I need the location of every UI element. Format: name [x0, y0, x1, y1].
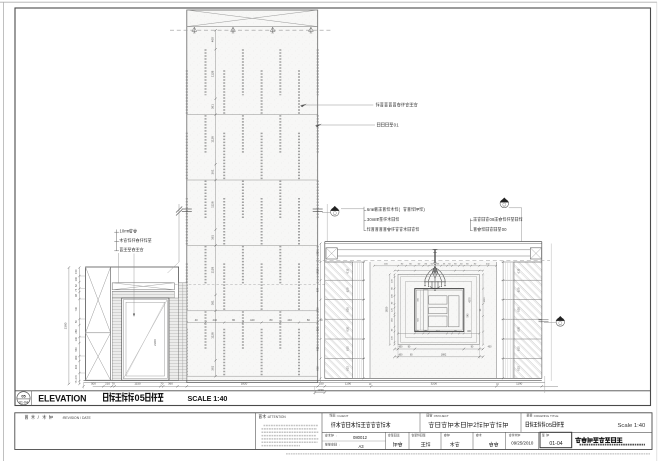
svg-text::CLIENT: :CLIENT [337, 414, 349, 418]
svg-text:730: 730 [74, 306, 78, 311]
svg-text:1128: 1128 [210, 332, 214, 339]
svg-text:620: 620 [315, 326, 319, 331]
svg-text:361: 361 [210, 104, 214, 109]
svg-text:615: 615 [517, 268, 521, 273]
svg-text:01-04: 01-04 [549, 441, 562, 447]
svg-text:3200: 3200 [431, 382, 438, 386]
svg-text:5: 5 [549, 423, 552, 429]
svg-text:70: 70 [112, 382, 116, 386]
svg-text:4278: 4278 [469, 297, 471, 303]
svg-text:400: 400 [210, 37, 214, 42]
svg-text:2300: 2300 [153, 339, 157, 346]
svg-text:440: 440 [213, 318, 218, 322]
svg-text:280: 280 [74, 329, 78, 334]
svg-text:01-04: 01-04 [19, 401, 28, 405]
svg-text::DRAWING TITLE: :DRAWING TITLE [534, 414, 559, 418]
svg-text:09/25/2010: 09/25/2010 [511, 441, 534, 446]
svg-text:100: 100 [74, 276, 78, 281]
svg-text:361: 361 [210, 169, 214, 174]
svg-text:361: 361 [210, 300, 214, 305]
svg-text:1190: 1190 [345, 382, 352, 386]
svg-text:615: 615 [346, 366, 350, 371]
svg-text::REVISION / DATE: :REVISION / DATE [62, 416, 92, 420]
svg-text:ELEVATION: ELEVATION [38, 393, 86, 403]
svg-text:620: 620 [517, 307, 521, 312]
svg-text:5: 5 [140, 393, 145, 403]
svg-text:620: 620 [346, 307, 350, 312]
svg-text:70: 70 [160, 382, 164, 386]
svg-text:250: 250 [319, 382, 324, 386]
svg-text:m: m [372, 207, 376, 212]
svg-text:130: 130 [74, 336, 78, 341]
svg-text:80: 80 [270, 318, 273, 322]
svg-text:361: 361 [210, 235, 214, 240]
svg-text:615: 615 [315, 268, 319, 273]
svg-text:T: T [377, 217, 380, 222]
svg-text::ATTENTION: :ATTENTION [267, 415, 286, 419]
svg-text:615: 615 [346, 268, 350, 273]
svg-text:1330: 1330 [317, 388, 324, 392]
svg-text:40: 40 [195, 318, 198, 322]
svg-text:2: 2 [473, 422, 477, 429]
svg-text:80: 80 [307, 318, 310, 322]
svg-text:615: 615 [315, 346, 319, 351]
svg-text:400: 400 [74, 364, 78, 369]
svg-text:1150: 1150 [134, 382, 141, 386]
svg-text:615: 615 [315, 366, 319, 371]
svg-text:1128: 1128 [210, 70, 214, 77]
svg-text:150: 150 [74, 269, 78, 274]
svg-text:620: 620 [315, 287, 319, 292]
svg-text:620: 620 [346, 287, 350, 292]
svg-text:1128: 1128 [210, 201, 214, 208]
svg-text:440: 440 [287, 318, 292, 322]
svg-text:1820: 1820 [241, 382, 248, 386]
svg-text:620: 620 [517, 326, 521, 331]
svg-text:Scale 1:40: Scale 1:40 [618, 423, 647, 429]
svg-text:1128: 1128 [210, 267, 214, 274]
svg-text:440: 440 [250, 318, 255, 322]
svg-text:2380: 2380 [64, 322, 68, 329]
svg-text:360: 360 [74, 355, 78, 360]
svg-text:A3: A3 [358, 444, 364, 449]
svg-text:80: 80 [232, 318, 235, 322]
svg-text:1010: 1010 [484, 297, 486, 303]
svg-text:210: 210 [105, 382, 110, 386]
svg-text:615: 615 [346, 346, 350, 351]
svg-text:360: 360 [168, 382, 173, 386]
svg-text:620: 620 [315, 307, 319, 312]
svg-text:615: 615 [517, 366, 521, 371]
svg-text:620: 620 [517, 287, 521, 292]
svg-text:080012: 080012 [353, 435, 368, 440]
svg-text:SCALE 1:40: SCALE 1:40 [188, 394, 228, 403]
svg-text:1128: 1128 [210, 136, 214, 143]
svg-text:270: 270 [74, 375, 78, 380]
svg-text:615: 615 [517, 346, 521, 351]
svg-text:560: 560 [74, 347, 78, 352]
svg-text:1190: 1190 [516, 382, 523, 386]
svg-text:620: 620 [346, 326, 350, 331]
svg-text:200: 200 [315, 250, 319, 255]
svg-text:1882: 1882 [441, 353, 447, 356]
svg-text:500: 500 [91, 382, 96, 386]
svg-text:1650: 1650 [385, 306, 389, 312]
svg-text::PROJECT: :PROJECT [434, 414, 449, 418]
svg-text:361: 361 [210, 365, 214, 370]
svg-text:40: 40 [320, 318, 323, 322]
